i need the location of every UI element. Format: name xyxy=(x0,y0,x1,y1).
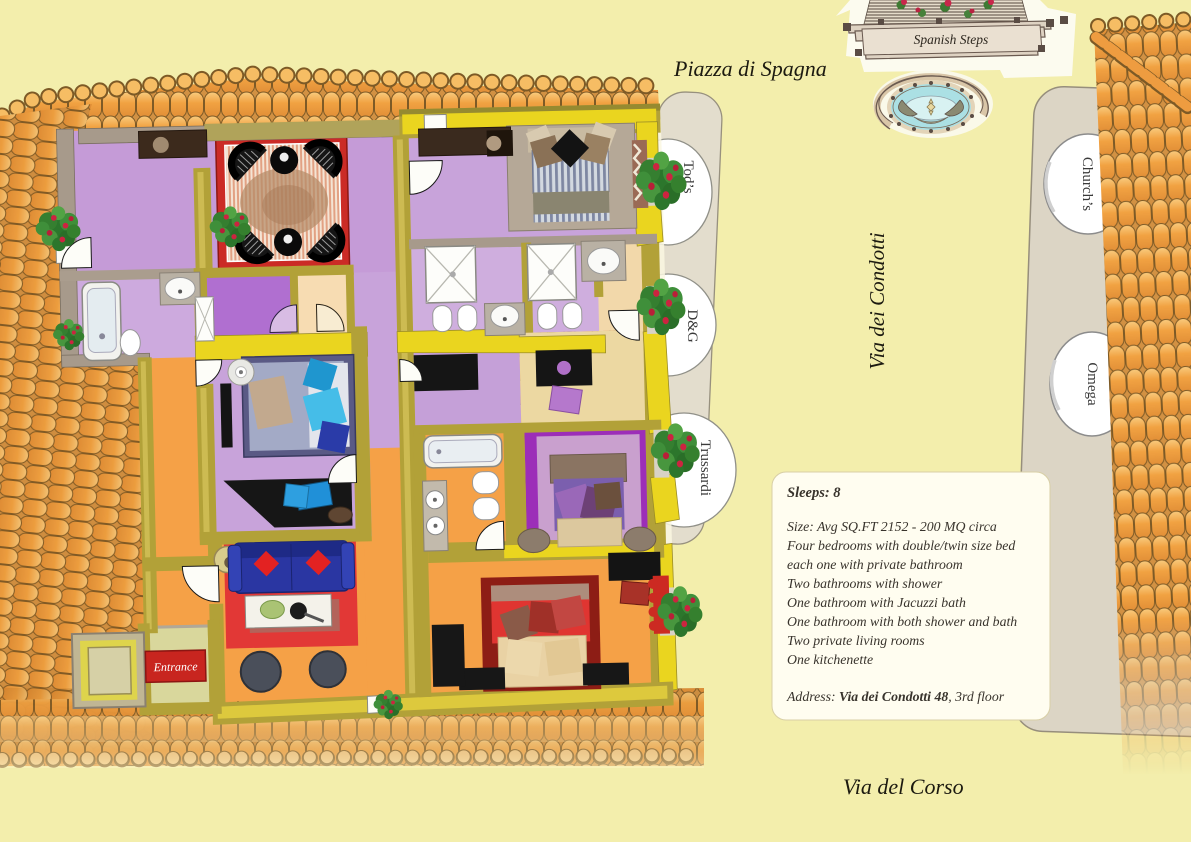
svg-text:One bathroom with both shower: One bathroom with both shower and bath xyxy=(787,614,1017,629)
svg-text:Church’s: Church’s xyxy=(1079,157,1095,211)
svg-text:Two bathrooms with shower: Two bathrooms with shower xyxy=(787,576,943,591)
svg-text:Four bedrooms with double/twin: Four bedrooms with double/twin size bed xyxy=(786,538,1015,553)
svg-text:Spanish Steps: Spanish Steps xyxy=(914,32,989,47)
svg-text:Via del Corso: Via del Corso xyxy=(843,774,964,799)
svg-text:Address: Via dei Condotti 48,: Address: Via dei Condotti 48, 3rd floor xyxy=(786,689,1005,704)
svg-text:Piazza di Spagna: Piazza di Spagna xyxy=(673,56,827,81)
svg-text:Trussardi: Trussardi xyxy=(697,440,713,496)
svg-text:Sleeps: 8: Sleeps: 8 xyxy=(787,485,841,501)
svg-text:Size: Avg SQ.FT 2152 - 200 MQ: Size: Avg SQ.FT 2152 - 200 MQ circa xyxy=(787,519,997,534)
svg-text:One bathroom with Jacuzzi bath: One bathroom with Jacuzzi bath xyxy=(787,595,966,610)
svg-text:each one with private bathroom: each one with private bathroom xyxy=(787,557,963,572)
svg-text:Two private living rooms: Two private living rooms xyxy=(787,633,925,648)
svg-text:Via dei Condotti: Via dei Condotti xyxy=(865,232,889,369)
svg-text:Omega: Omega xyxy=(1084,362,1100,406)
svg-text:One kitchenette: One kitchenette xyxy=(787,652,873,667)
svg-text:D&G: D&G xyxy=(684,309,700,343)
svg-text:Entrance: Entrance xyxy=(152,659,198,674)
